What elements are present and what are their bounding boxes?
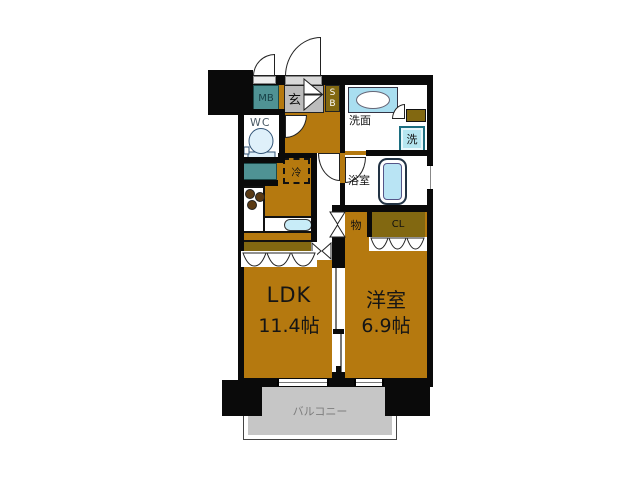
kitchen-counter-joint — [244, 218, 263, 231]
kitchen-counter-bar — [241, 240, 317, 251]
kitchen-scallops-icon — [242, 252, 316, 267]
closet-box: CL — [371, 212, 425, 237]
shoe-box-label: S B — [329, 88, 335, 110]
wall-divider-top — [332, 237, 345, 268]
wall-under-teal — [238, 180, 278, 186]
washroom-sink — [356, 91, 390, 109]
wall-washroom-left-upper — [340, 85, 345, 153]
storage-folding-door-icon — [329, 211, 346, 238]
bathroom-window-line — [430, 166, 431, 189]
closet-label: CL — [392, 219, 405, 230]
wall-bath-top — [366, 150, 427, 156]
storage-label: 物 — [351, 217, 362, 233]
entrance-door-arc — [285, 37, 321, 76]
bathroom-label: 浴室 — [348, 172, 370, 188]
sliding-door-tick — [333, 329, 344, 334]
washroom-label: 洗面 — [349, 112, 371, 128]
entrance-double-door-icon — [303, 78, 324, 111]
western-room-label: 洋室 — [345, 284, 427, 313]
sliding-door-line-upper — [335, 268, 337, 332]
teal-cabinet — [240, 163, 277, 180]
refrigerator-box: 冷 — [283, 158, 310, 184]
meter-box-door-arc — [253, 54, 275, 76]
wall-right — [427, 85, 433, 385]
washing-machine: 洗 — [399, 126, 425, 152]
wall-left — [238, 85, 244, 385]
floor-plan: MB 玄 S B 洗 物 CL 冷 — [0, 0, 640, 480]
wall-bath-bottom — [332, 205, 427, 212]
ldk-window-line — [279, 382, 327, 383]
stove-icon — [243, 188, 267, 214]
entrance-label: 玄 — [288, 89, 301, 108]
wall-storage-closet — [367, 212, 372, 237]
refrigerator-label: 冷 — [292, 164, 302, 179]
wall-wc-top — [238, 109, 285, 115]
washing-machine-label: 洗 — [407, 131, 418, 147]
western-room-size-label: 6.9帖 — [345, 311, 427, 338]
bathtub — [378, 158, 407, 205]
western-room-window-line — [356, 382, 382, 383]
wall-shelf — [406, 109, 426, 122]
wall-fridge-right — [311, 153, 317, 243]
ldk-label: LDK — [244, 283, 334, 307]
meter-box: MB — [253, 85, 279, 112]
toilet-room-label: WC — [250, 116, 271, 129]
sliding-door-tick-bottom — [336, 366, 341, 373]
closet-scallops-icon — [370, 237, 425, 250]
meter-box-sill — [253, 76, 276, 84]
shoe-box: S B — [325, 85, 340, 112]
meter-box-label: MB — [258, 93, 274, 104]
ldk-size-label: 11.4帖 — [244, 311, 334, 338]
balcony-label: バルコニー — [243, 403, 397, 419]
kitchen-sink — [284, 219, 312, 231]
storage-box: 物 — [345, 212, 367, 237]
wall-divider-bottom — [332, 372, 345, 385]
